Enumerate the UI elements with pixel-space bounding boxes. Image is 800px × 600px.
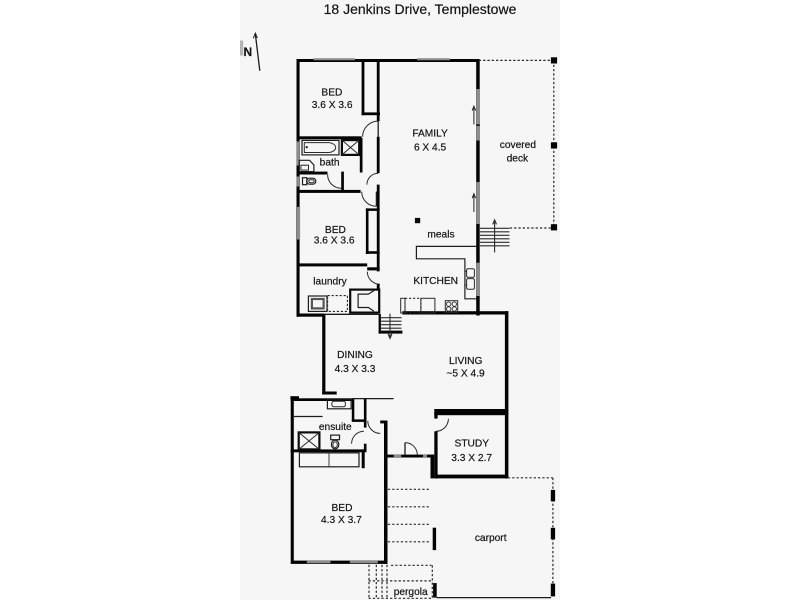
svg-text:3.6 X 3.6: 3.6 X 3.6 xyxy=(312,100,353,111)
svg-text:18 Jenkins Drive, Templestowe: 18 Jenkins Drive, Templestowe xyxy=(324,1,517,17)
svg-text:~5 X 4.9: ~5 X 4.9 xyxy=(446,369,485,380)
svg-text:ensuite: ensuite xyxy=(319,422,352,433)
svg-text:4.3 X 3.3: 4.3 X 3.3 xyxy=(335,364,376,375)
svg-text:N: N xyxy=(243,45,252,59)
svg-text:laundry: laundry xyxy=(313,276,347,287)
svg-text:pergola: pergola xyxy=(394,587,428,598)
svg-text:DINING: DINING xyxy=(337,350,373,361)
svg-text:KITCHEN: KITCHEN xyxy=(413,276,458,287)
svg-text:deck: deck xyxy=(507,153,529,164)
svg-text:4.3 X 3.7: 4.3 X 3.7 xyxy=(321,515,362,526)
svg-text:BED: BED xyxy=(325,225,346,236)
svg-text:meals: meals xyxy=(427,229,454,240)
svg-text:carport: carport xyxy=(475,533,507,544)
svg-text:STUDY: STUDY xyxy=(455,439,490,450)
svg-text:BED: BED xyxy=(321,88,342,99)
svg-text:6 X 4.5: 6 X 4.5 xyxy=(414,143,447,154)
svg-text:BED: BED xyxy=(332,503,353,514)
svg-text:LIVING: LIVING xyxy=(449,356,482,367)
svg-text:3.3 X 2.7: 3.3 X 2.7 xyxy=(451,453,492,464)
svg-text:FAMILY: FAMILY xyxy=(412,129,448,140)
svg-text:3.6 X 3.6: 3.6 X 3.6 xyxy=(314,236,355,247)
svg-text:covered: covered xyxy=(500,140,537,151)
svg-text:bath: bath xyxy=(320,158,340,169)
